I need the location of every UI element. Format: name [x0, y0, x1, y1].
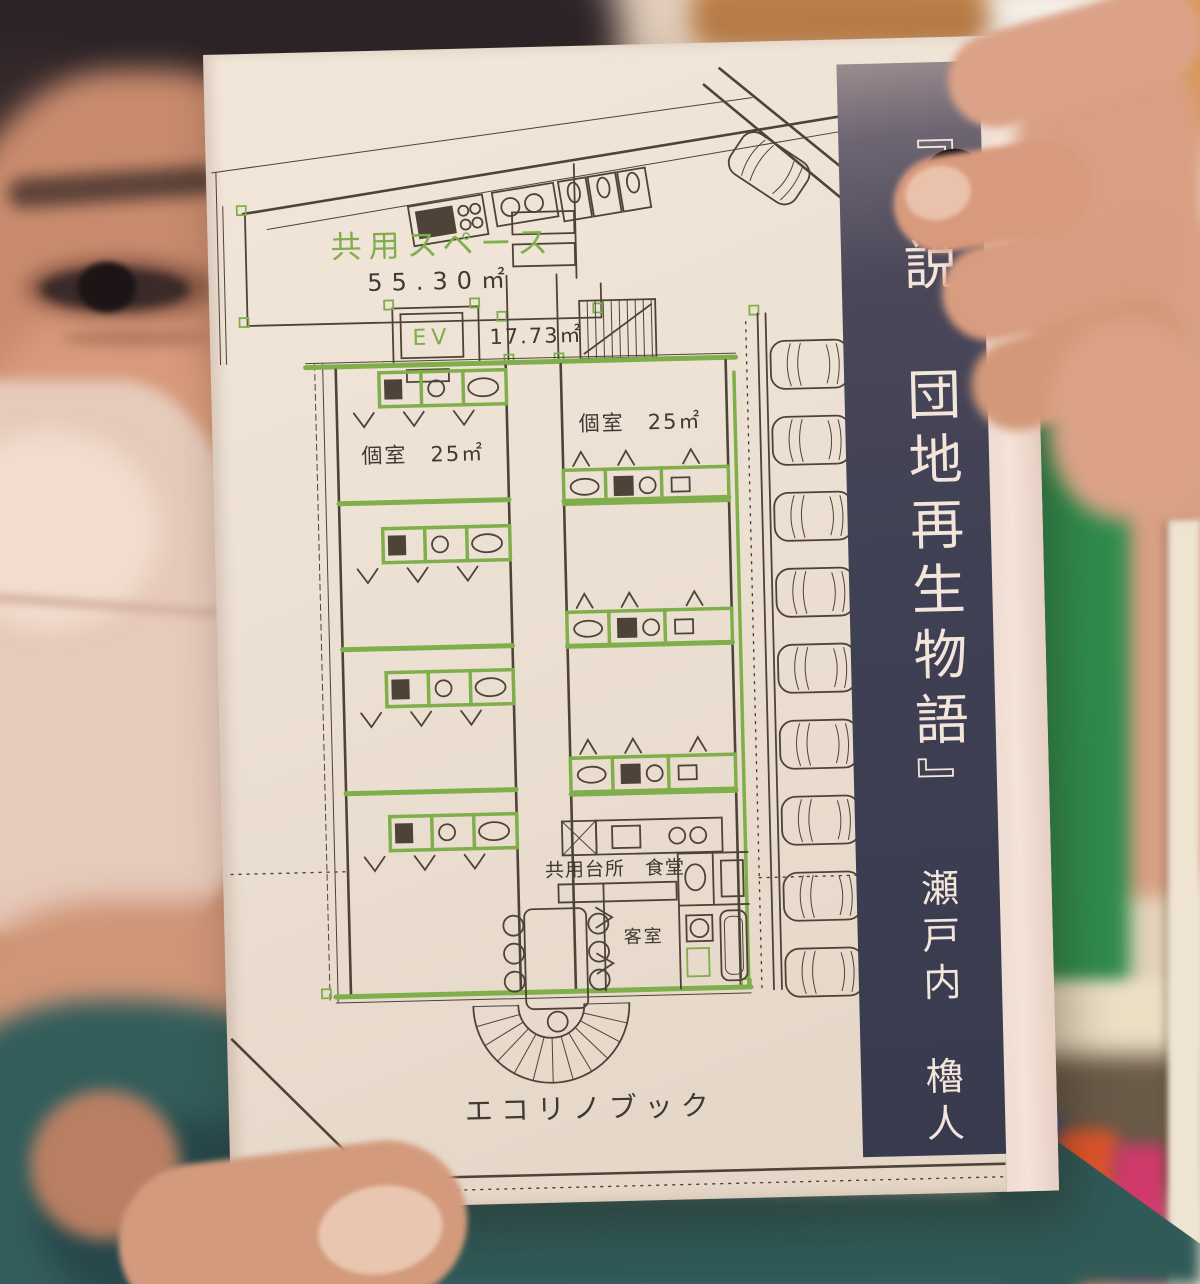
- private-room-left-label: 個室 25㎡: [361, 441, 484, 468]
- spiral-stair: [473, 1003, 631, 1085]
- photo-scene: 共用スペース 55.30㎡ EV 17.73㎡ 個室 25㎡ 個室 25㎡ 共用…: [0, 0, 1200, 1284]
- knuckles: [1050, 320, 1200, 520]
- kitchen-dining: [501, 818, 727, 1033]
- elevator-area: 17.73㎡: [489, 323, 583, 349]
- under-eye-shadow: [60, 330, 210, 346]
- guest-room-label: 客室: [623, 926, 664, 948]
- private-room-right-label: 個室 25㎡: [578, 409, 701, 436]
- guest-room: [595, 883, 614, 990]
- door-frame: [1168, 520, 1200, 1284]
- shared-space-area: 55.30㎡: [367, 265, 514, 297]
- publisher-label: エコリノブック: [464, 1089, 717, 1128]
- iris: [78, 262, 136, 312]
- kitchen-dining-label: 共用台所 食堂: [545, 856, 686, 881]
- shared-space-label: 共用スペース: [330, 224, 555, 265]
- book-author: 瀬戸内 櫓人: [909, 868, 971, 1151]
- elevator-label: EV: [412, 325, 452, 351]
- upper-stairs: [579, 299, 656, 359]
